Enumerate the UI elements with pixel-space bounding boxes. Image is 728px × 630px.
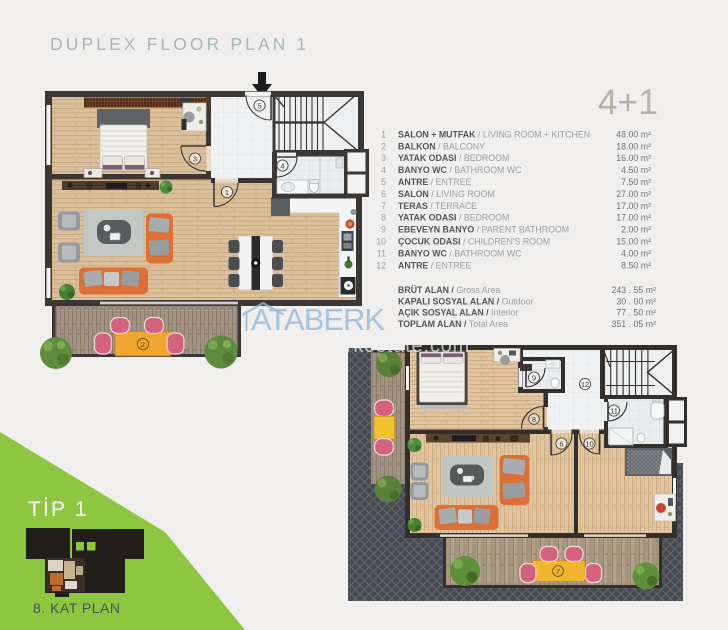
svg-text:8.50 m²: 8.50 m² (621, 260, 651, 270)
svg-text:BANYO WC / BATHROOM WC: BANYO WC / BATHROOM WC (398, 165, 522, 175)
svg-text:4.00 m²: 4.00 m² (621, 248, 651, 258)
svg-text:7.50 m²: 7.50 m² (621, 177, 651, 187)
svg-text:18.00 m²: 18.00 m² (616, 141, 651, 151)
svg-text:15.00 m²: 15.00 m² (616, 237, 651, 247)
svg-text:9: 9 (532, 373, 536, 382)
svg-text:77 . 50 m²: 77 . 50 m² (616, 308, 656, 318)
svg-text:27.00 m²: 27.00 m² (616, 189, 651, 199)
svg-text:TOPLAM ALAN / Total Area: TOPLAM ALAN / Total Area (398, 319, 508, 329)
svg-text:4+1: 4+1 (598, 82, 658, 122)
svg-text:AÇIK SOSYAL ALAN / Interior: AÇIK SOSYAL ALAN / Interior (398, 308, 518, 318)
svg-text:8. KAT PLAN: 8. KAT PLAN (33, 600, 120, 616)
svg-text:SALON / LIVING ROOM: SALON / LIVING ROOM (398, 189, 495, 199)
svg-text:1: 1 (225, 188, 229, 197)
svg-text:BRÜT ALAN / Gross Area: BRÜT ALAN / Gross Area (398, 285, 500, 295)
svg-text:3: 3 (193, 154, 197, 163)
svg-text:SALON + MUTFAK / LIVING ROOM +: SALON + MUTFAK / LIVING ROOM + KITCHEN (398, 129, 590, 139)
svg-text:17.00 m²: 17.00 m² (616, 213, 651, 223)
svg-text:6: 6 (381, 189, 386, 199)
svg-text:7: 7 (556, 567, 560, 576)
svg-text:YATAK ODASI / BEDROOM: YATAK ODASI / BEDROOM (398, 213, 509, 223)
svg-text:EBEVEYN BANYO / PARENT BATHROO: EBEVEYN BANYO / PARENT BATHROOM (398, 225, 569, 235)
svg-text:5: 5 (381, 177, 386, 187)
svg-text:17.00 m²: 17.00 m² (616, 201, 651, 211)
svg-text:7: 7 (381, 201, 386, 211)
svg-text:2: 2 (141, 340, 145, 349)
svg-text:4: 4 (381, 165, 386, 175)
svg-text:3: 3 (381, 153, 386, 163)
svg-text:TİP 1: TİP 1 (28, 498, 89, 521)
svg-text:4: 4 (280, 161, 284, 170)
svg-text:ATABERK: ATABERK (251, 302, 385, 337)
svg-text:12: 12 (376, 260, 386, 270)
svg-text:YATAK ODASI / BEDROOM: YATAK ODASI / BEDROOM (398, 153, 509, 163)
svg-text:KAPALI SOSYAL ALAN / Outdoor: KAPALI SOSYAL ALAN / Outdoor (398, 296, 533, 306)
svg-text:351 . 05 m²: 351 . 05 m² (612, 319, 657, 329)
svg-text:ANTRE / ENTREE: ANTRE / ENTREE (398, 260, 471, 270)
svg-text:ANTRE / ENTREE: ANTRE / ENTREE (398, 177, 471, 187)
svg-text:4.50 m²: 4.50 m² (621, 165, 651, 175)
svg-text:10: 10 (376, 237, 386, 247)
svg-text:11: 11 (377, 248, 386, 258)
svg-text:2.00 m²: 2.00 m² (621, 225, 651, 235)
svg-text:8: 8 (532, 415, 536, 424)
svg-text:erkestate.com: erkestate.com (334, 335, 470, 357)
svg-text:9: 9 (381, 225, 386, 235)
svg-text:8: 8 (381, 213, 386, 223)
svg-text:1: 1 (381, 129, 386, 139)
svg-text:12: 12 (581, 380, 589, 389)
svg-text:2: 2 (381, 141, 386, 151)
svg-text:48.00 m²: 48.00 m² (616, 129, 651, 139)
svg-text:16.00 m²: 16.00 m² (616, 153, 651, 163)
svg-text:TERAS / TERRACE: TERAS / TERRACE (398, 201, 477, 211)
svg-text:243 . 55 m²: 243 . 55 m² (612, 285, 657, 295)
svg-text:10: 10 (585, 439, 593, 448)
svg-text:30 . 00 m²: 30 . 00 m² (616, 296, 656, 306)
svg-text:11: 11 (610, 406, 618, 415)
svg-text:BALKON / BALCONY: BALKON / BALCONY (398, 141, 485, 151)
svg-text:6: 6 (559, 439, 563, 448)
svg-text:DUPLEX FLOOR PLAN 1: DUPLEX FLOOR PLAN 1 (50, 34, 309, 54)
svg-text:5: 5 (257, 101, 261, 110)
svg-text:BANYO WC / BATHROOM WC: BANYO WC / BATHROOM WC (398, 248, 522, 258)
svg-text:ÇOCUK ODASI / CHILDREN'S ROOM: ÇOCUK ODASI / CHILDREN'S ROOM (398, 237, 550, 247)
